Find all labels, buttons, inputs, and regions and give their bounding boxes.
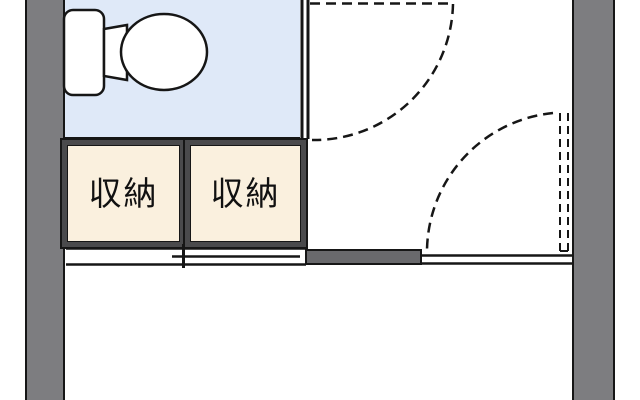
closet-right-label: 収納 [211, 177, 281, 210]
door-swing-top [310, 4, 453, 141]
partition-wall [306, 250, 421, 264]
toilet-room [65, 0, 300, 140]
closet-left-label: 収納 [89, 177, 159, 210]
doorway-opening [421, 256, 572, 264]
door-panel-dashed [560, 113, 568, 252]
closet-right: 収納 [185, 140, 306, 247]
closet-left: 収納 [62, 140, 185, 247]
toilet-room-wall-lines [302, 0, 308, 139]
floorplan: 収納 収納 [0, 0, 640, 400]
wall-right [572, 0, 615, 400]
wall-left [25, 0, 65, 400]
sliding-door-track [66, 244, 306, 268]
door-swing-right [427, 113, 568, 252]
door-swing-arc [427, 113, 553, 250]
